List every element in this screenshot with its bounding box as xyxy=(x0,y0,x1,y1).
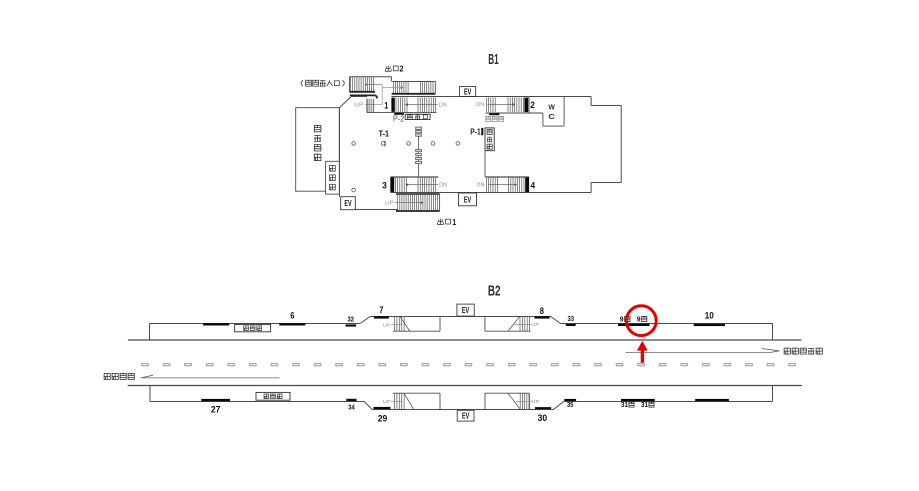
svg-text:2: 2 xyxy=(399,63,403,73)
svg-text:1: 1 xyxy=(452,217,456,227)
svg-text:DN: DN xyxy=(477,182,485,188)
svg-text:31: 31 xyxy=(641,402,648,409)
svg-text:34: 34 xyxy=(348,404,355,411)
svg-text:31: 31 xyxy=(621,402,628,409)
svg-text:P-2: P-2 xyxy=(393,113,405,123)
svg-text:UP: UP xyxy=(531,399,539,404)
svg-text:33: 33 xyxy=(568,314,575,323)
svg-text:UP: UP xyxy=(531,322,539,327)
svg-text:DN: DN xyxy=(439,182,447,188)
svg-text:EV: EV xyxy=(464,87,472,97)
svg-text:27: 27 xyxy=(211,405,221,415)
svg-text:6: 6 xyxy=(290,310,294,320)
svg-text:T-1: T-1 xyxy=(379,128,390,138)
svg-text:P-1: P-1 xyxy=(470,127,481,137)
svg-text:4: 4 xyxy=(531,180,536,191)
svg-text:29: 29 xyxy=(378,413,388,423)
svg-text:8: 8 xyxy=(540,306,544,316)
svg-text:UP: UP xyxy=(354,103,364,109)
svg-text:9: 9 xyxy=(620,315,624,324)
svg-text:3: 3 xyxy=(382,180,387,191)
svg-text:EV: EV xyxy=(344,198,352,208)
svg-text:32: 32 xyxy=(348,314,355,323)
svg-text:EV: EV xyxy=(464,195,472,205)
svg-text:EV: EV xyxy=(462,305,470,315)
svg-text:UP: UP xyxy=(383,399,391,404)
svg-text:30: 30 xyxy=(538,413,548,423)
svg-text:UP: UP xyxy=(383,322,391,327)
svg-text:1: 1 xyxy=(384,100,389,111)
svg-text:7: 7 xyxy=(379,305,383,315)
svg-text:DN: DN xyxy=(476,102,484,108)
svg-text:W: W xyxy=(548,103,555,112)
svg-text:C: C xyxy=(548,112,555,121)
svg-text:B1: B1 xyxy=(488,51,498,68)
svg-text:35: 35 xyxy=(567,402,574,409)
svg-text:UP: UP xyxy=(385,201,395,207)
svg-text:2: 2 xyxy=(530,100,535,111)
svg-text:DN: DN xyxy=(439,102,447,108)
svg-text:9: 9 xyxy=(637,315,641,324)
svg-text:10: 10 xyxy=(705,311,714,321)
svg-text:B2: B2 xyxy=(488,282,501,299)
svg-text:EV: EV xyxy=(462,411,470,421)
